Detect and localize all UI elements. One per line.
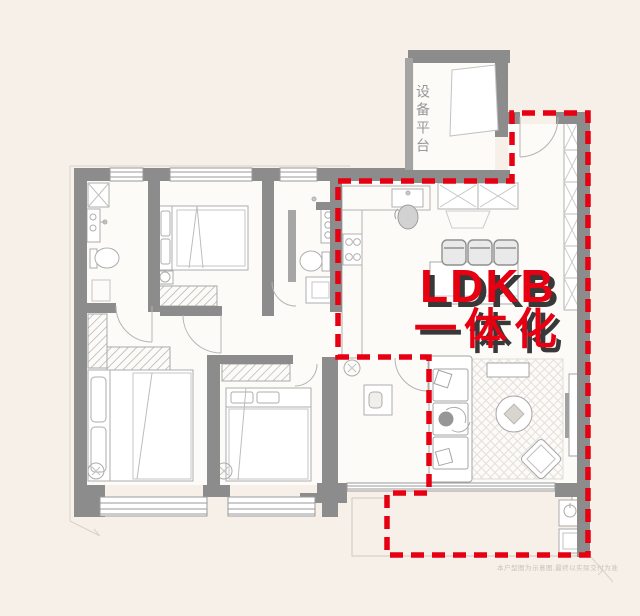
person-figure — [439, 412, 454, 427]
equipment-platform-label: 设备平台 — [413, 84, 433, 156]
floorplan-image: LDKB 一体化 设备平台 本户型图为示意图,最终以实际交付为准 — [0, 0, 640, 616]
ldkb-label: LDKB — [420, 263, 556, 309]
yitihua-label: 一体化 — [414, 309, 564, 352]
watermark-text: 本户型图为示意图,最终以实际交付为准 — [497, 562, 618, 572]
equipment-platform — [450, 65, 498, 136]
